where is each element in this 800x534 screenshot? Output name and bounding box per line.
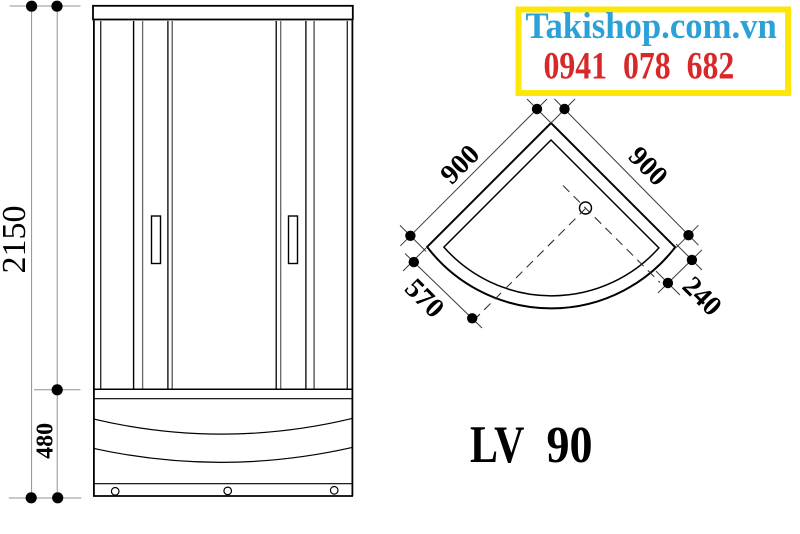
- svg-text:LV: LV: [470, 417, 524, 474]
- svg-text:Takishop.com.vn: Takishop.com.vn: [526, 5, 777, 47]
- svg-text:480: 480: [33, 423, 59, 459]
- svg-text:2150: 2150: [0, 206, 33, 274]
- svg-text:0941 078 682: 0941 078 682: [544, 43, 735, 87]
- svg-text:90: 90: [547, 415, 593, 473]
